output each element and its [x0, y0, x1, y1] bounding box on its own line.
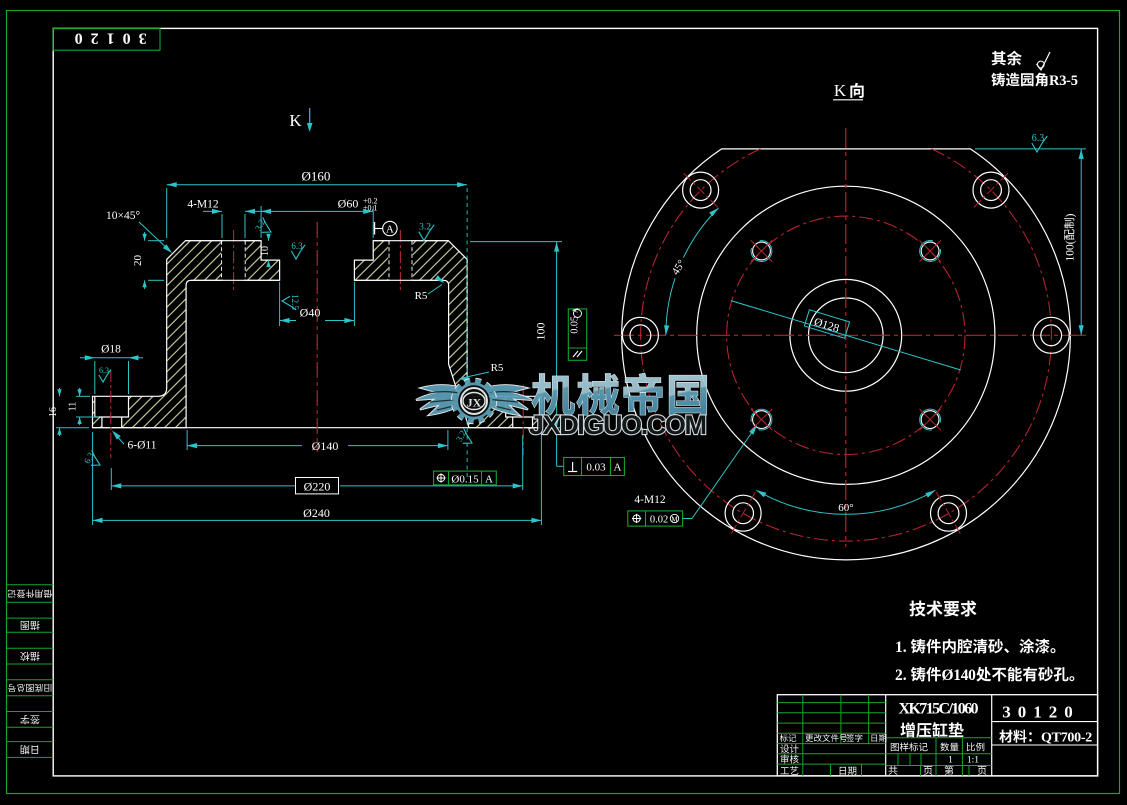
- svg-text:4-M12: 4-M12: [187, 199, 219, 211]
- svg-text:6.3: 6.3: [1032, 133, 1045, 144]
- svg-text:Ø140: Ø140: [942, 667, 977, 684]
- svg-text:Ø40: Ø40: [300, 306, 321, 320]
- svg-text:6.3: 6.3: [99, 366, 109, 375]
- svg-text:2.: 2.: [895, 667, 907, 684]
- svg-text:R3-5: R3-5: [1049, 73, 1078, 89]
- svg-text:3.2: 3.2: [419, 223, 431, 233]
- svg-text:4-M12: 4-M12: [634, 494, 666, 506]
- svg-text:K: K: [289, 111, 302, 130]
- svg-text:0.03: 0.03: [586, 462, 606, 474]
- svg-text:M: M: [671, 515, 678, 524]
- svg-text:12.5: 12.5: [290, 294, 300, 310]
- svg-text:JXDIGUO.COM: JXDIGUO.COM: [529, 410, 707, 440]
- svg-text:10: 10: [260, 246, 271, 256]
- svg-text:6.3: 6.3: [291, 241, 303, 251]
- svg-text:Ø220: Ø220: [304, 479, 331, 493]
- svg-text:1.: 1.: [895, 639, 907, 656]
- svg-text:1:1: 1:1: [967, 756, 979, 766]
- svg-text:K: K: [834, 81, 847, 100]
- svg-text:JX: JX: [467, 396, 482, 410]
- svg-text:30120: 30120: [67, 29, 147, 46]
- svg-text:XK715C/1060: XK715C/1060: [899, 701, 979, 718]
- svg-text:+0.1: +0.1: [363, 204, 378, 213]
- svg-text:Ø160: Ø160: [302, 169, 331, 184]
- svg-text:A: A: [614, 462, 622, 474]
- svg-text:100: 100: [534, 323, 548, 341]
- svg-text:A: A: [571, 307, 580, 313]
- svg-text:Ø0.15: Ø0.15: [451, 474, 479, 486]
- svg-text:Ø240: Ø240: [303, 506, 330, 520]
- svg-text:0.05: 0.05: [570, 316, 581, 334]
- svg-text:1: 1: [948, 756, 953, 766]
- svg-text:Ø60: Ø60: [338, 197, 359, 211]
- svg-text:R5: R5: [415, 290, 428, 302]
- svg-text:60°: 60°: [838, 502, 853, 514]
- svg-text:Ø18: Ø18: [101, 344, 121, 356]
- svg-text:100(: 100(: [1065, 240, 1077, 261]
- svg-text:10×45°: 10×45°: [106, 210, 140, 222]
- svg-text:20: 20: [132, 255, 144, 267]
- svg-text:Ø140: Ø140: [312, 439, 339, 453]
- svg-text:A: A: [485, 474, 493, 486]
- svg-text:0.02: 0.02: [650, 515, 668, 526]
- svg-text:QT700-2: QT700-2: [1041, 731, 1092, 746]
- svg-text:6-Ø11: 6-Ø11: [128, 440, 157, 452]
- svg-text:): ): [1065, 213, 1077, 217]
- svg-text:16: 16: [48, 407, 59, 417]
- svg-text:11: 11: [68, 402, 79, 412]
- svg-text:R5: R5: [491, 362, 504, 374]
- svg-text:A: A: [386, 224, 394, 236]
- svg-text:30120: 30120: [1002, 703, 1080, 722]
